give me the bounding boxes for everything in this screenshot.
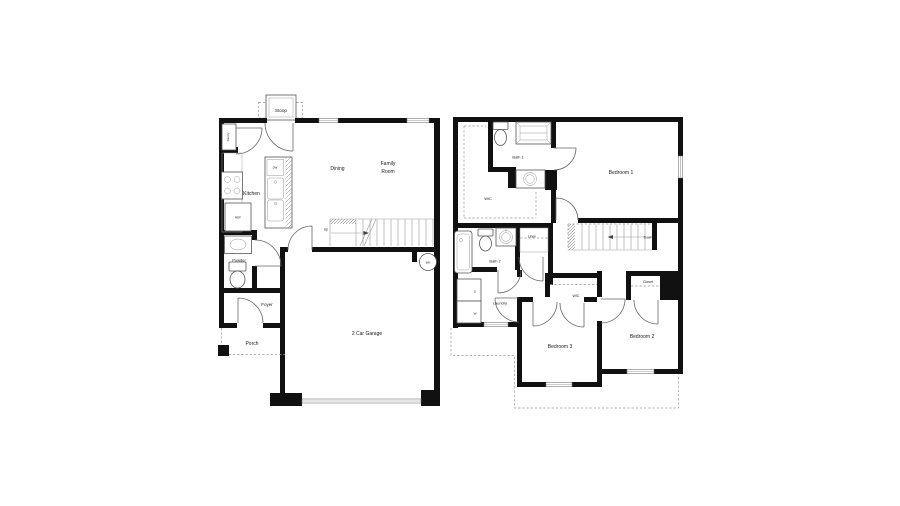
laundry-label: Laundry (493, 301, 507, 306)
porch-post (218, 345, 229, 356)
range-stove (222, 172, 243, 199)
wic-bed3-label: WIC (573, 294, 580, 298)
second-floor-plan: Down (451, 117, 683, 408)
stairs-hatch (330, 219, 356, 224)
pantry-cabinet: Pantry (222, 124, 236, 150)
refrigerator: REF (225, 203, 251, 231)
garage-door (302, 399, 421, 403)
kitchen-island: DW (265, 157, 292, 228)
pantry-label: Pantry (226, 132, 230, 141)
family-room-label-line2: Room (381, 169, 394, 175)
dw-label: DW (273, 166, 278, 170)
floor1-walls (219, 118, 440, 406)
bedroom1-label: Bedroom 1 (609, 170, 634, 176)
bath2-tub (455, 231, 473, 273)
island-hatch (286, 158, 292, 228)
stairs-down-label: Down (644, 236, 653, 240)
ref-label: REF (235, 216, 241, 220)
kitchen-label: Kitchen (243, 191, 260, 197)
stairs-floor2: Down (568, 224, 652, 250)
stairs-floor1: Up (324, 219, 434, 246)
powder-label: Powder (232, 258, 246, 263)
powder-sink (225, 236, 252, 254)
bedroom3-label: Bedroom 3 (548, 344, 573, 350)
bath1-label: Bath 1 (512, 155, 523, 160)
linen-closet (520, 228, 548, 252)
washer: W (457, 301, 481, 323)
floorplan-canvas: Stoop Up (0, 0, 900, 506)
bath2-sink (496, 228, 516, 246)
bath1-tub-shower (516, 122, 551, 144)
wic-label: WIC (484, 196, 492, 201)
water-heater: WH (420, 254, 437, 271)
wh-label: WH (426, 260, 431, 264)
stairs-up-label: Up (324, 228, 328, 232)
family-room-label-line1: Family (381, 161, 396, 167)
floor2-roof-dashed-outline (451, 328, 679, 408)
foyer-label: Foyer (261, 302, 273, 307)
bath1-vanity (516, 170, 545, 188)
dryer: D (457, 279, 481, 301)
bath2-label: Bath 2 (489, 259, 500, 264)
bath1-toilet (493, 122, 508, 146)
first-floor-plan: Stoop Up (218, 95, 440, 406)
closet-label: Closet (643, 280, 653, 284)
stoop-label: Stoop (275, 108, 287, 113)
porch-label: Porch (245, 341, 258, 347)
linen-label: Linen (528, 235, 536, 239)
washer-label: W (474, 312, 477, 316)
bath2-toilet (478, 229, 493, 251)
dining-label: Dining (330, 166, 344, 172)
bedroom2-label: Bedroom 2 (630, 334, 655, 340)
floorplan-drawing: Stoop Up (0, 0, 900, 506)
powder-toilet (229, 262, 246, 288)
garage-label: 2 Car Garage (352, 331, 383, 337)
stairs2-hatch (568, 224, 575, 250)
